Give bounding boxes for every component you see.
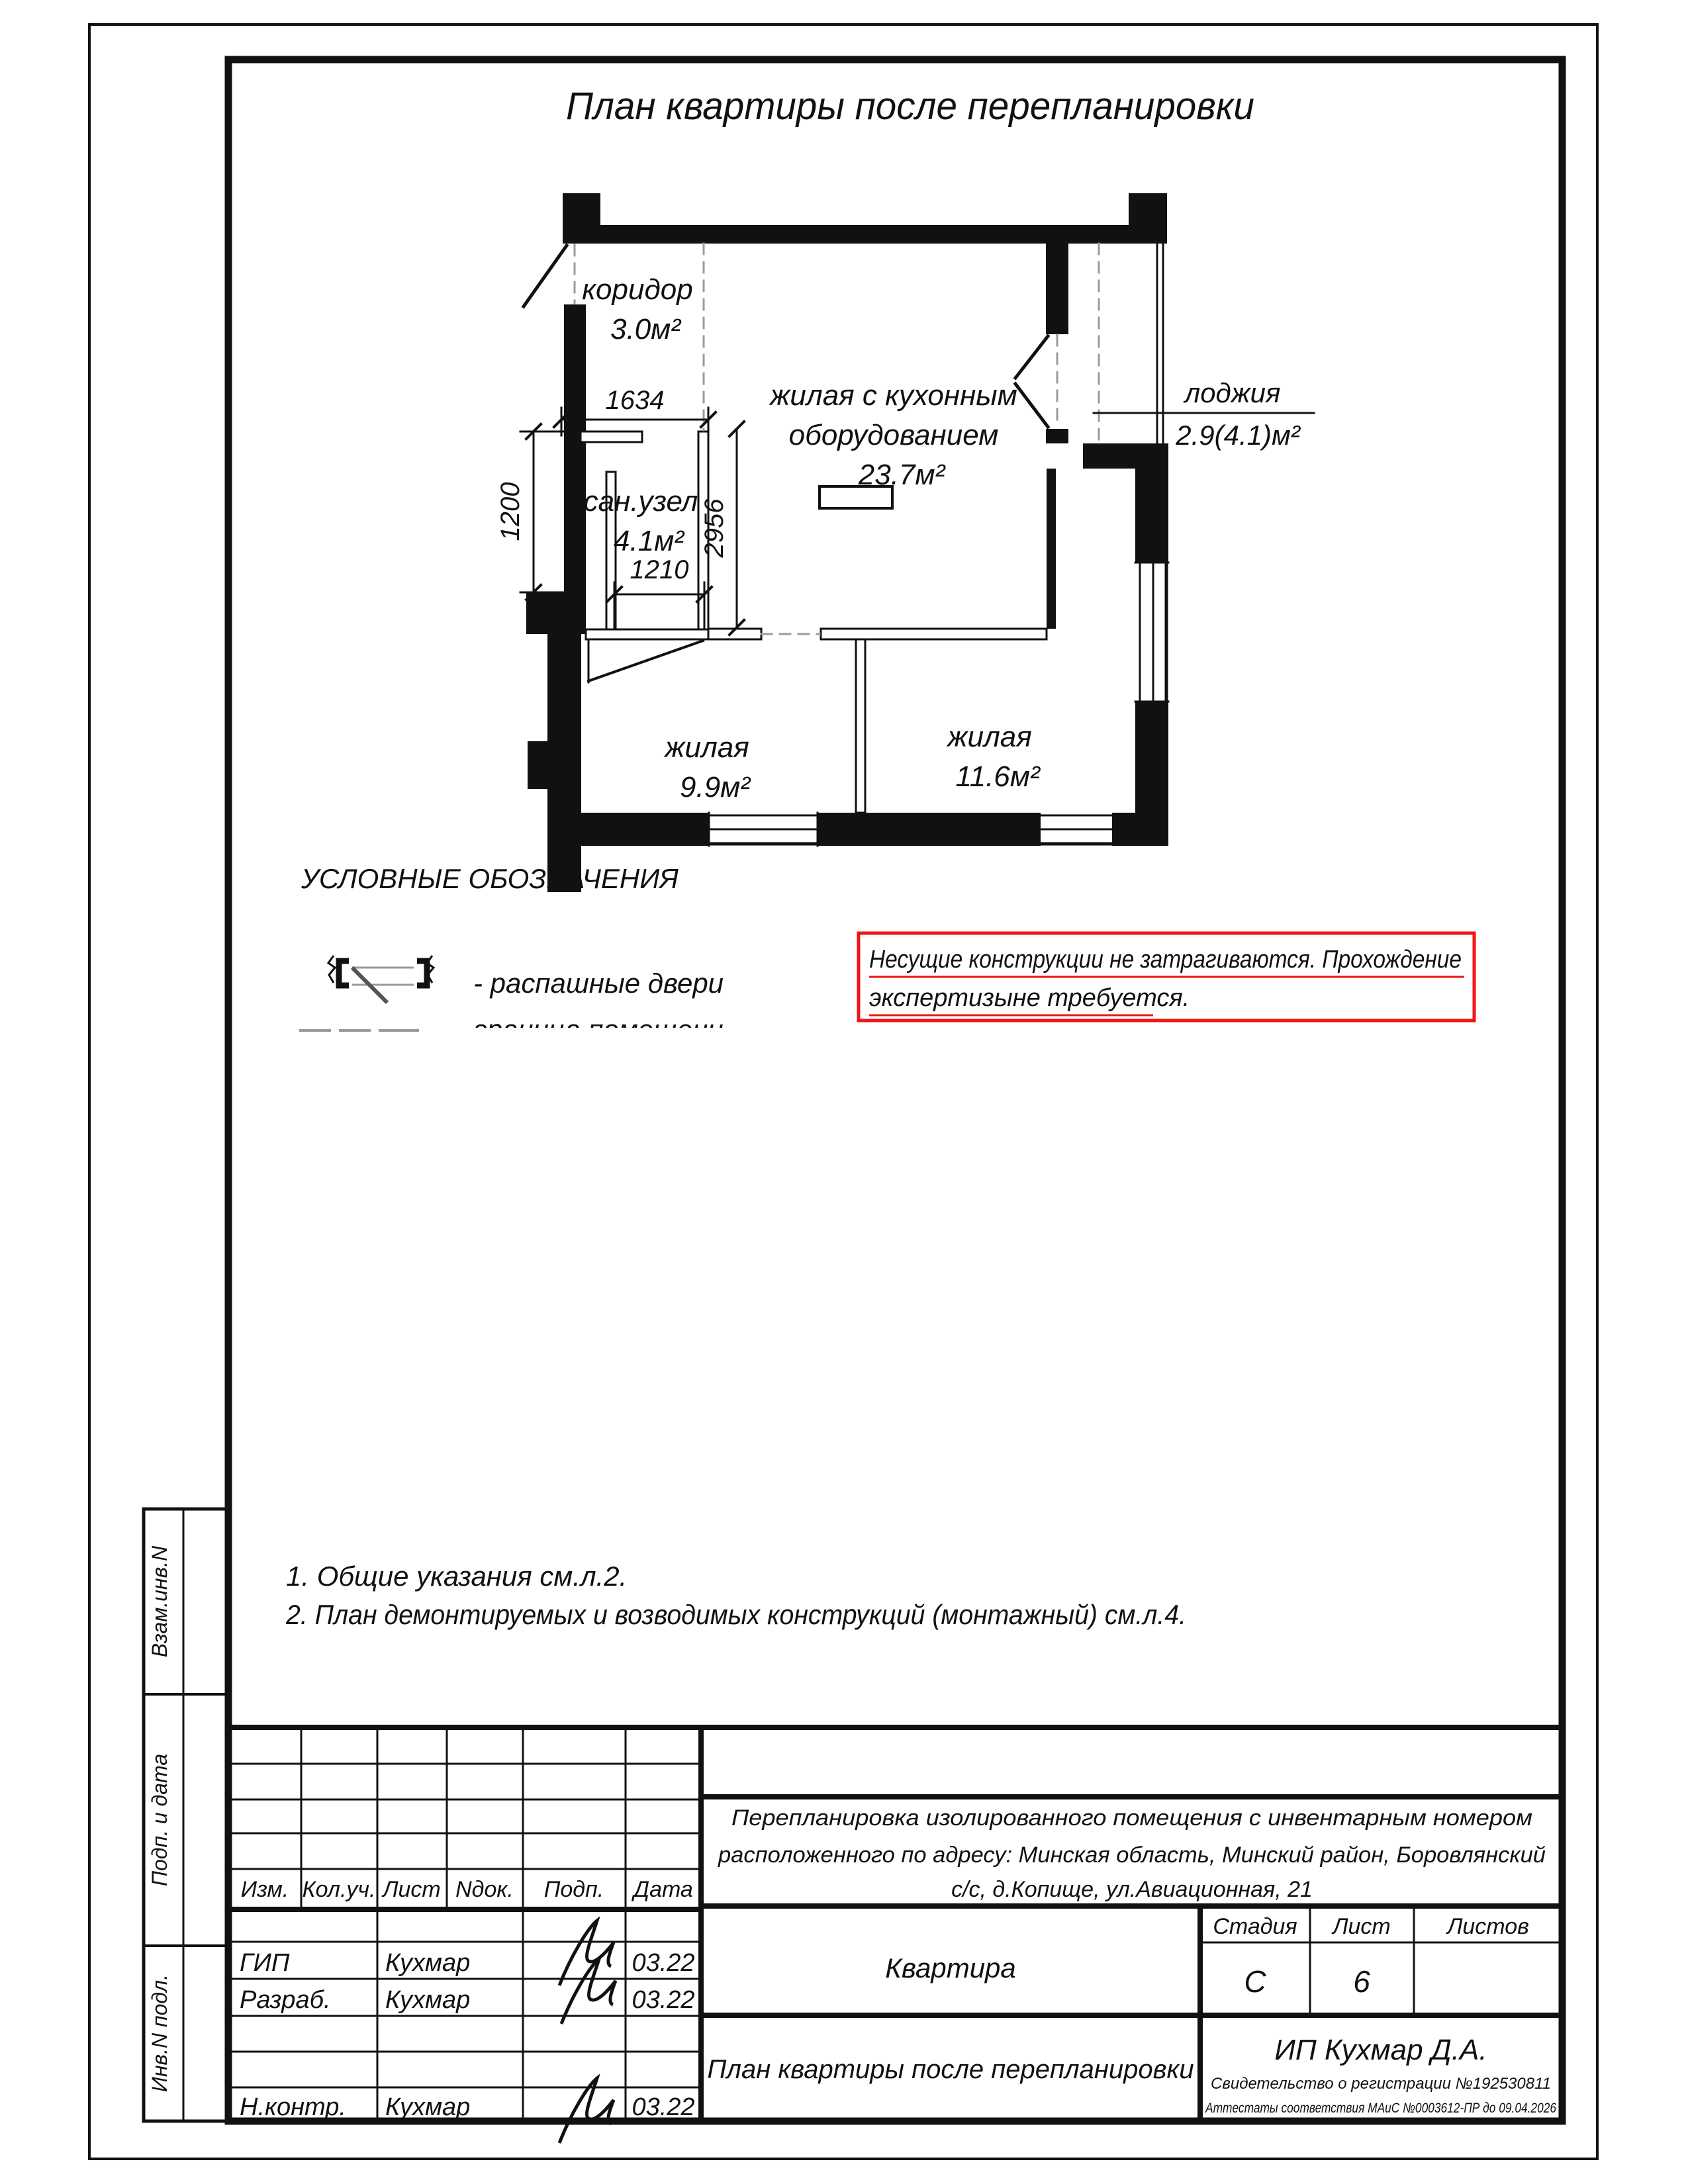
note-1: 1. Общие указания см.л.2. [286,1561,627,1592]
label-room1: жилая [663,731,749,764]
swing-door-icon [328,956,434,1003]
stage-header: Стадия [1213,1914,1297,1939]
sheets-header: Листов [1446,1914,1529,1939]
label-kitchen-area: 23.7м² [858,459,946,491]
legend-item-doors: - распашные двери [473,968,724,999]
label-koridor-area: 3.0м² [610,313,681,345]
project-description: Перепланировка изолированного помещения … [718,1805,1546,1902]
sidebar-stamps: Взам.инв.N Подп. и дата Инв.N подл. [144,1509,228,2121]
entry-door-leaf [524,246,567,306]
note-2: 2. План демонтируемых и возводимых конст… [285,1599,1186,1630]
label-sanuzel: сан.узел [584,485,698,518]
red-note: Несущие конструкции не затрагиваются. Пр… [859,933,1474,1021]
date-razrab: 03.22 [632,1986,694,2014]
sidebar-label-podp: Подп. и дата [148,1754,171,1886]
header-data: Дата [631,1877,693,1902]
signature-razrab [561,1959,616,2024]
signatures [559,1921,616,2143]
floor-plan: 1634 1200 2956 1210 коридор 3.0м² сан.уз… [496,193,1314,892]
company-block: ИП Кухмар Д.А. Свидетельство о регистрац… [1204,2034,1556,2116]
doors [524,246,1048,682]
balcony-door-leaf-bottom [1015,384,1048,427]
company-cert2: Аттестаты соответствия МАиС №0003612-ПР … [1204,2101,1556,2116]
company-name: ИП Кухмар Д.А. [1274,2034,1487,2066]
windows [709,244,1168,846]
object-name: Квартира [885,1952,1016,1983]
header-ndok: Nдок. [455,1877,514,1902]
legend: УСЛОВНЫЕ ОБОЗНАЧЕНИЯ - распашные двери г… [299,863,837,1058]
dim-1200: 1200 [496,482,525,541]
page-title: План квартиры после перепланировки [566,85,1254,128]
label-loggia-area: 2.9(4.1)м² [1175,420,1301,451]
project-line3: с/с, д.Копище, ул.Авиационная, 21 [951,1877,1313,1902]
loggia-callout: лоджия 2.9(4.1)м² [1094,377,1314,451]
role-gip: ГИП [240,1949,290,1977]
project-line1: Перепланировка изолированного помещения … [731,1805,1532,1831]
dim-2956: 2956 [700,498,729,559]
header-list: Лист [381,1877,441,1902]
clip-mask [467,1028,837,1058]
label-koridor: коридор [582,273,692,306]
room-labels: коридор 3.0м² сан.узел 4.1м² жилая с кух… [582,273,1041,803]
project-line2: расположенного по адресу: Минская област… [718,1843,1546,1868]
drawing-sheet: План квартиры после перепланировки [0,0,1688,2184]
date-nkontr: 03.22 [632,2093,694,2121]
red-note-line2: экспертизыне требуется. [869,984,1190,1012]
stage-block: Стадия Лист Листов С 6 [1213,1914,1529,1999]
label-kitchen-2: оборудованием [789,419,999,451]
label-room2: жилая [946,721,1032,753]
name-gip: Кухмар [385,1949,470,1977]
sanuzel-door-leaf [588,641,703,681]
window-bottom-left [709,813,818,846]
window-bottom-right [1041,815,1112,844]
company-cert1: Свидетельство о регистрации №192530811 [1211,2075,1551,2093]
sidebar-label-vzam: Взам.инв.N [148,1545,171,1657]
sheet-value: 6 [1353,1964,1370,1999]
header-izm: Изм. [241,1877,289,1902]
balcony-door-leaf-top [1015,336,1048,378]
dim-1210: 1210 [630,555,689,584]
name-nkontr: Кухмар [385,2093,470,2121]
role-nkontr: Н.контр. [240,2093,346,2121]
sidebar-label-inv: Инв.N подл. [148,1974,171,2092]
label-loggia: лоджия [1183,377,1281,408]
stage-value: С [1244,1964,1266,1999]
label-room1-area: 9.9м² [680,771,751,803]
date-gip: 03.22 [632,1949,694,1977]
notes: 1. Общие указания см.л.2. 2. План демонт… [285,1561,1186,1630]
title-block: Изм. Кол.уч. Лист Nдок. Подп. Дата ГИП К… [228,1727,1562,2143]
role-razrab: Разраб. [240,1986,331,2014]
sheet-header: Лист [1331,1914,1391,1939]
dim-1634: 1634 [606,386,665,415]
legend-title: УСЛОВНЫЕ ОБОЗНАЧЕНИЯ [301,863,679,894]
blueprint-canvas: План квартиры после перепланировки [0,0,1688,2184]
label-sanuzel-area: 4.1м² [614,525,684,557]
outer-frame [89,24,1597,2159]
sheet-title: План квартиры после перепланировки [707,2055,1194,2084]
header-kol: Кол.уч. [303,1877,376,1902]
label-kitchen-1: жилая с кухонным [769,379,1017,412]
window-right-wall [1135,563,1168,702]
red-note-line1: Несущие конструкции не затрагиваются. Пр… [869,946,1462,974]
label-room2-area: 11.6м² [955,760,1041,793]
header-podp: Подп. [544,1877,604,1902]
name-razrab: Кухмар [385,1986,470,2014]
